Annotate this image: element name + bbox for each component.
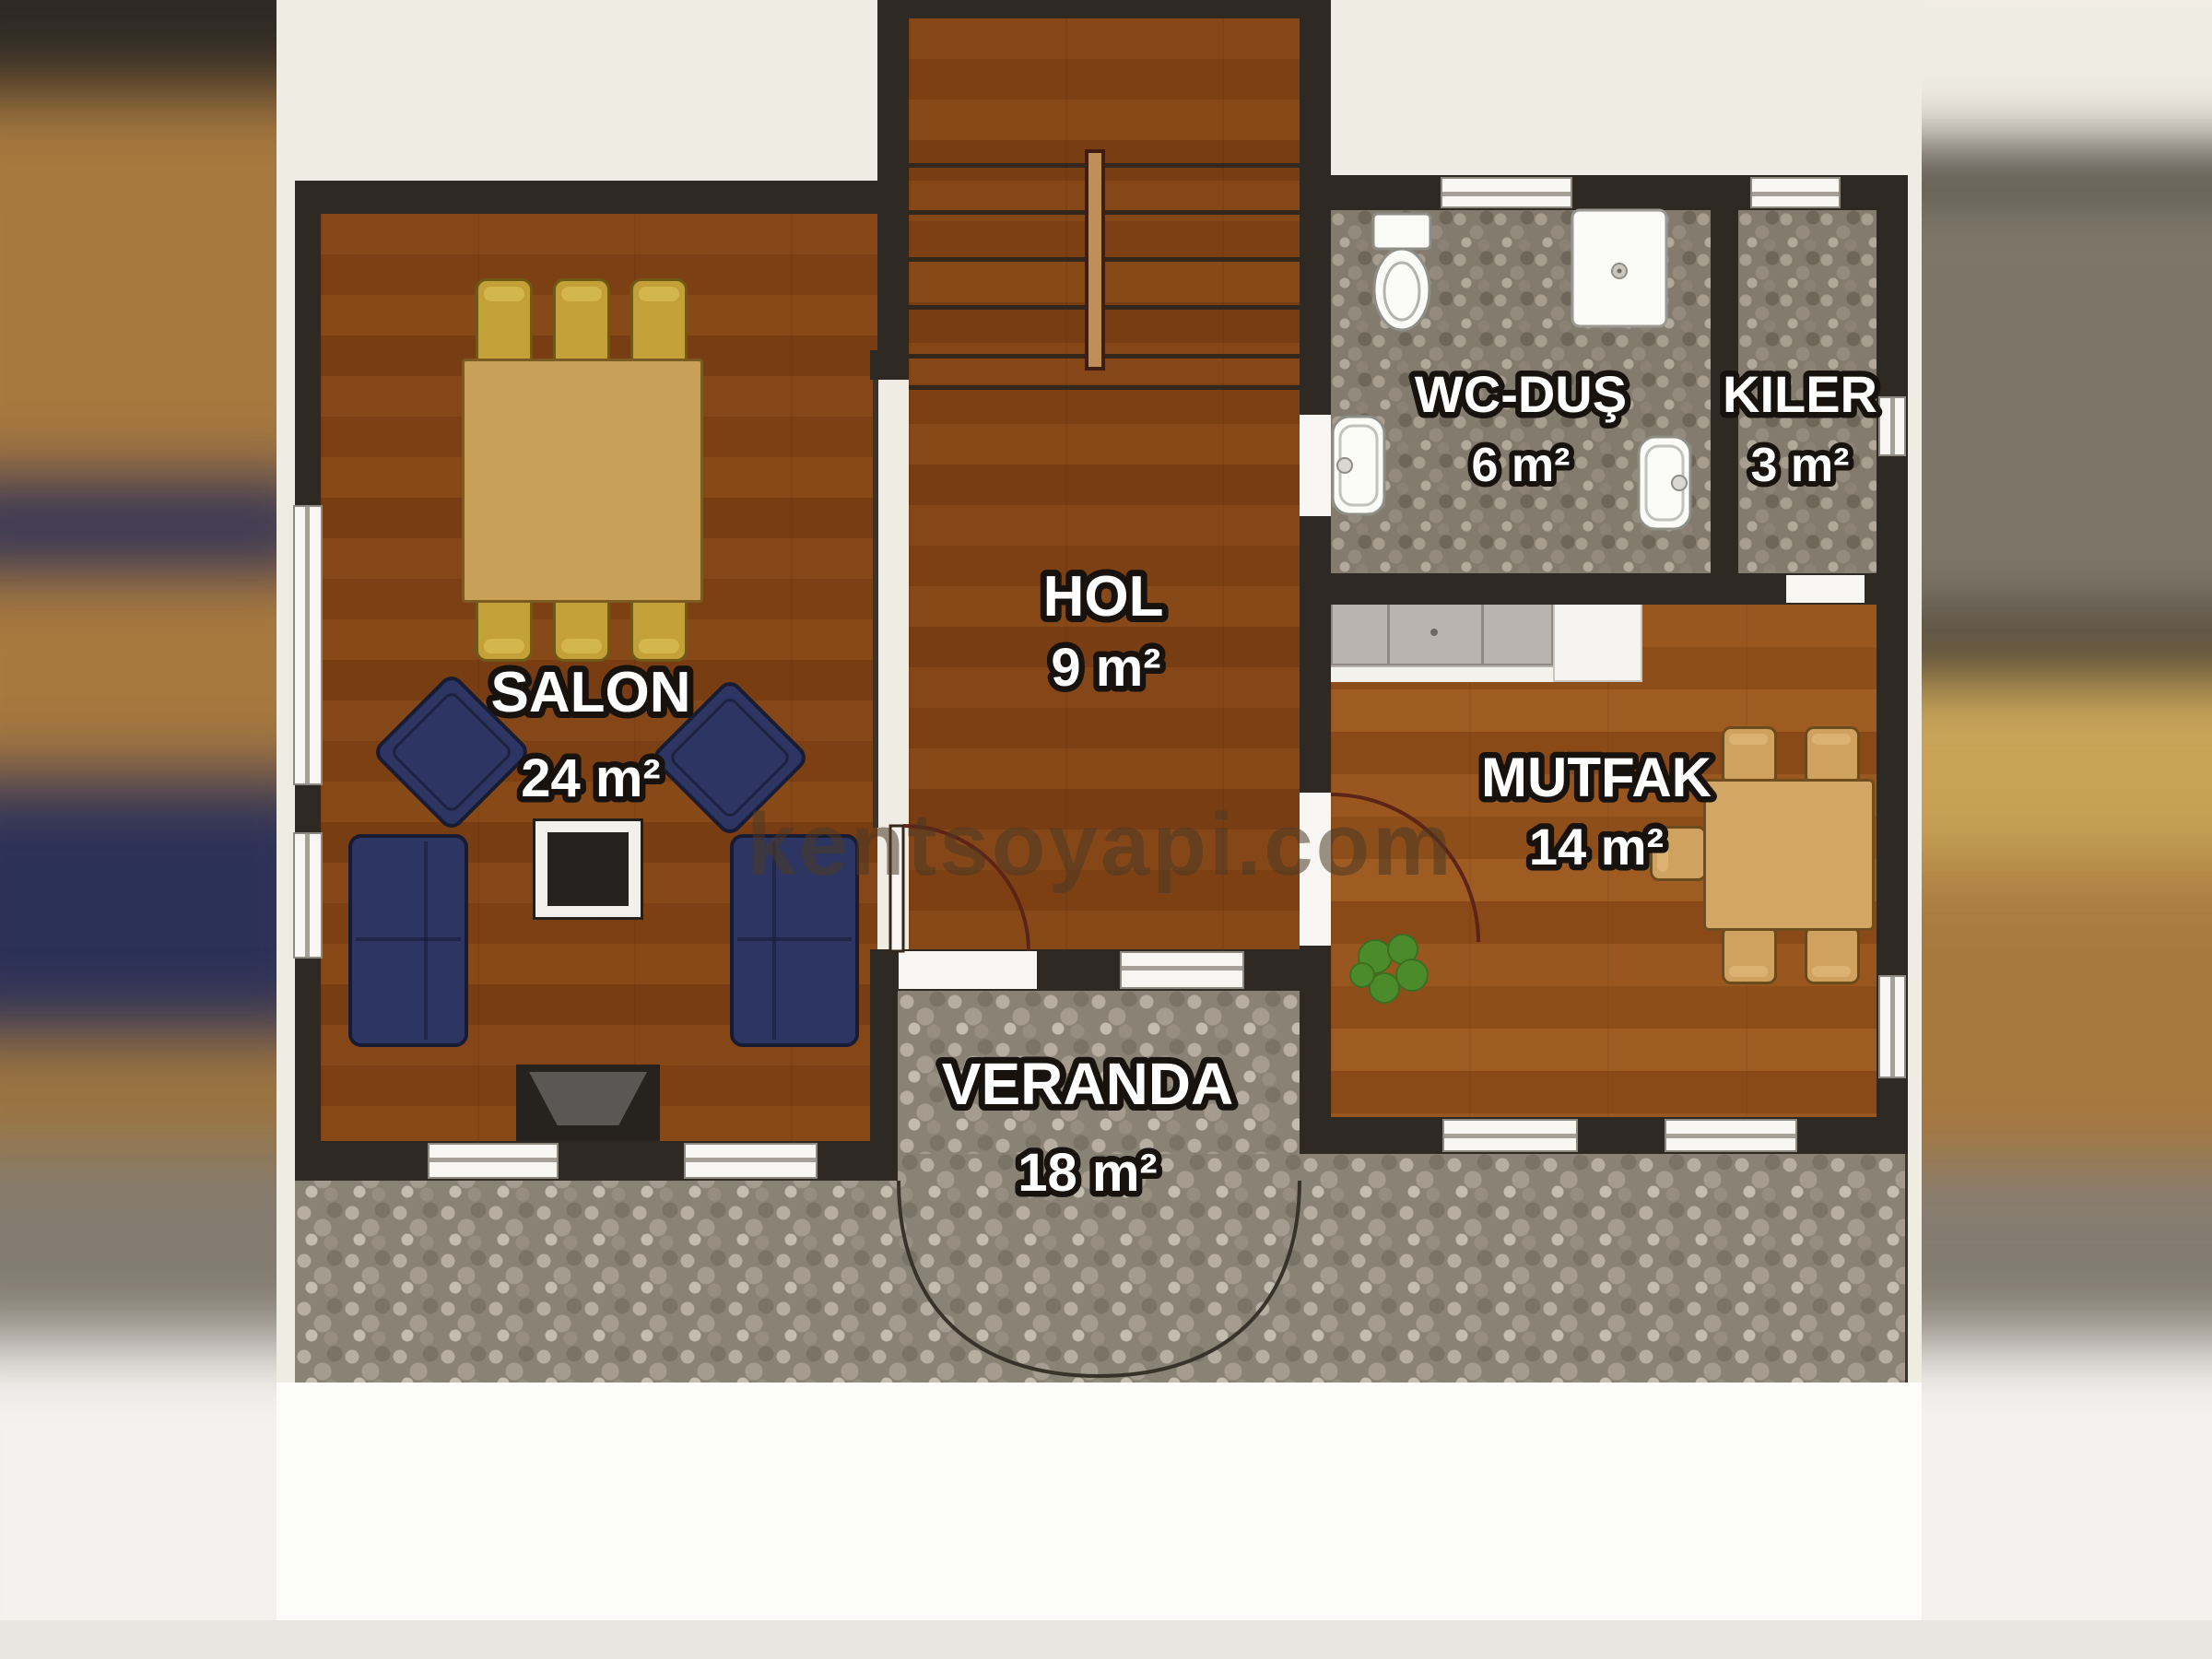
label-kiler: KILER [1723, 365, 1877, 423]
washbasin-icon [1333, 417, 1384, 514]
watermark-text: kentsoyapi.com [747, 794, 1454, 896]
floor-plan-canvas: SALON 24 m² HOL 9 m² WC-DUŞ 6 m² KILER 3… [0, 0, 2212, 1659]
shower-icon [1572, 210, 1666, 326]
label-hol: HOL [1043, 565, 1164, 629]
label-wc-dus-area: 6 m² [1472, 439, 1571, 492]
label-kiler-area: 3 m² [1751, 439, 1850, 492]
washbasin-icon [1639, 437, 1690, 529]
label-veranda: VERANDA [942, 1051, 1233, 1117]
label-mutfak: MUTFAK [1481, 747, 1712, 808]
label-veranda-area: 18 m² [1018, 1143, 1158, 1203]
label-hol-area: 9 m² [1051, 638, 1160, 698]
label-wc-dus: WC-DUŞ [1415, 365, 1627, 423]
veranda-arc [899, 1181, 1300, 1376]
label-salon-area: 24 m² [521, 748, 661, 808]
toilet-icon [1373, 214, 1430, 330]
label-salon: SALON [491, 661, 691, 724]
plant-icon [1350, 935, 1428, 1003]
label-mutfak-area: 14 m² [1529, 818, 1664, 876]
